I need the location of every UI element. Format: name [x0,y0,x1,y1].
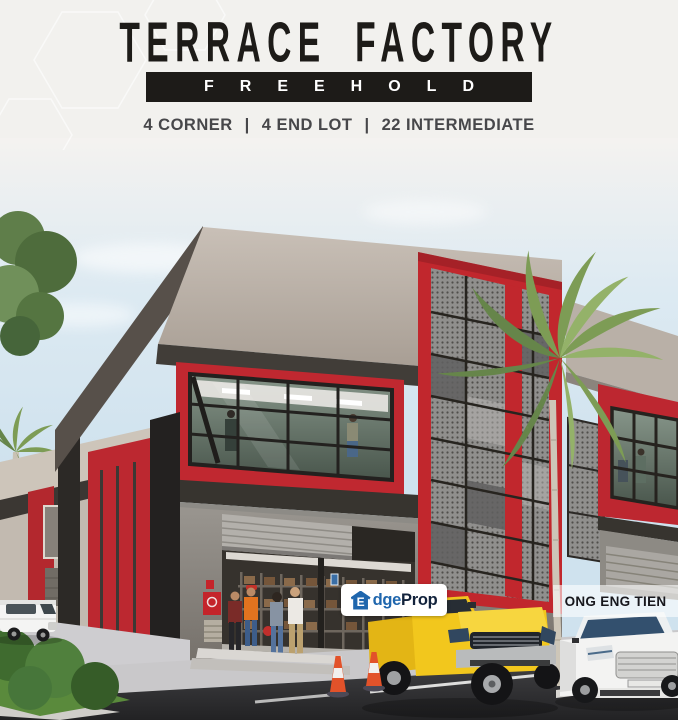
unit-count-endlot: 4 END LOT [262,116,353,134]
office-window-grid [190,374,392,480]
page-title: TERRACE FACTORY [68,10,610,75]
divider: | [364,116,369,134]
bay-divider [318,556,324,652]
edgeprop-logo: EdgeProp [341,584,447,616]
freehold-banner: FREEHOLD [146,72,532,102]
advertisement-canvas: TERRACE FACTORY FREEHOLD 4 CORNER|4 END … [0,0,678,720]
edgeprop-wordmark-prop: Prop [401,591,437,610]
side-mirror [468,602,476,608]
house-icon-letter: E [351,595,371,610]
white-van [0,600,62,645]
headlight [448,628,470,643]
house-icon: E [351,591,371,610]
dark-column [58,432,80,652]
unit-count-intermediate: 22 INTERMEDIATE [382,116,535,134]
upper-window [612,408,678,508]
unit-mix-subtitle: 4 CORNER|4 END LOT|22 INTERMEDIATE [0,116,678,135]
fire-extinguisher-cabinet [203,592,221,615]
grille [616,652,678,678]
divider: | [245,116,250,134]
fire-sign [206,580,214,589]
edgeprop-wordmark-edge: dge [373,591,401,610]
header: TERRACE FACTORY FREEHOLD 4 CORNER|4 END … [0,0,678,150]
agent-name-badge: ONG ENG TIEN [553,585,678,617]
side-mirror [572,638,579,643]
unit-count-corner: 4 CORNER [143,116,232,134]
wall-signage [331,574,338,585]
